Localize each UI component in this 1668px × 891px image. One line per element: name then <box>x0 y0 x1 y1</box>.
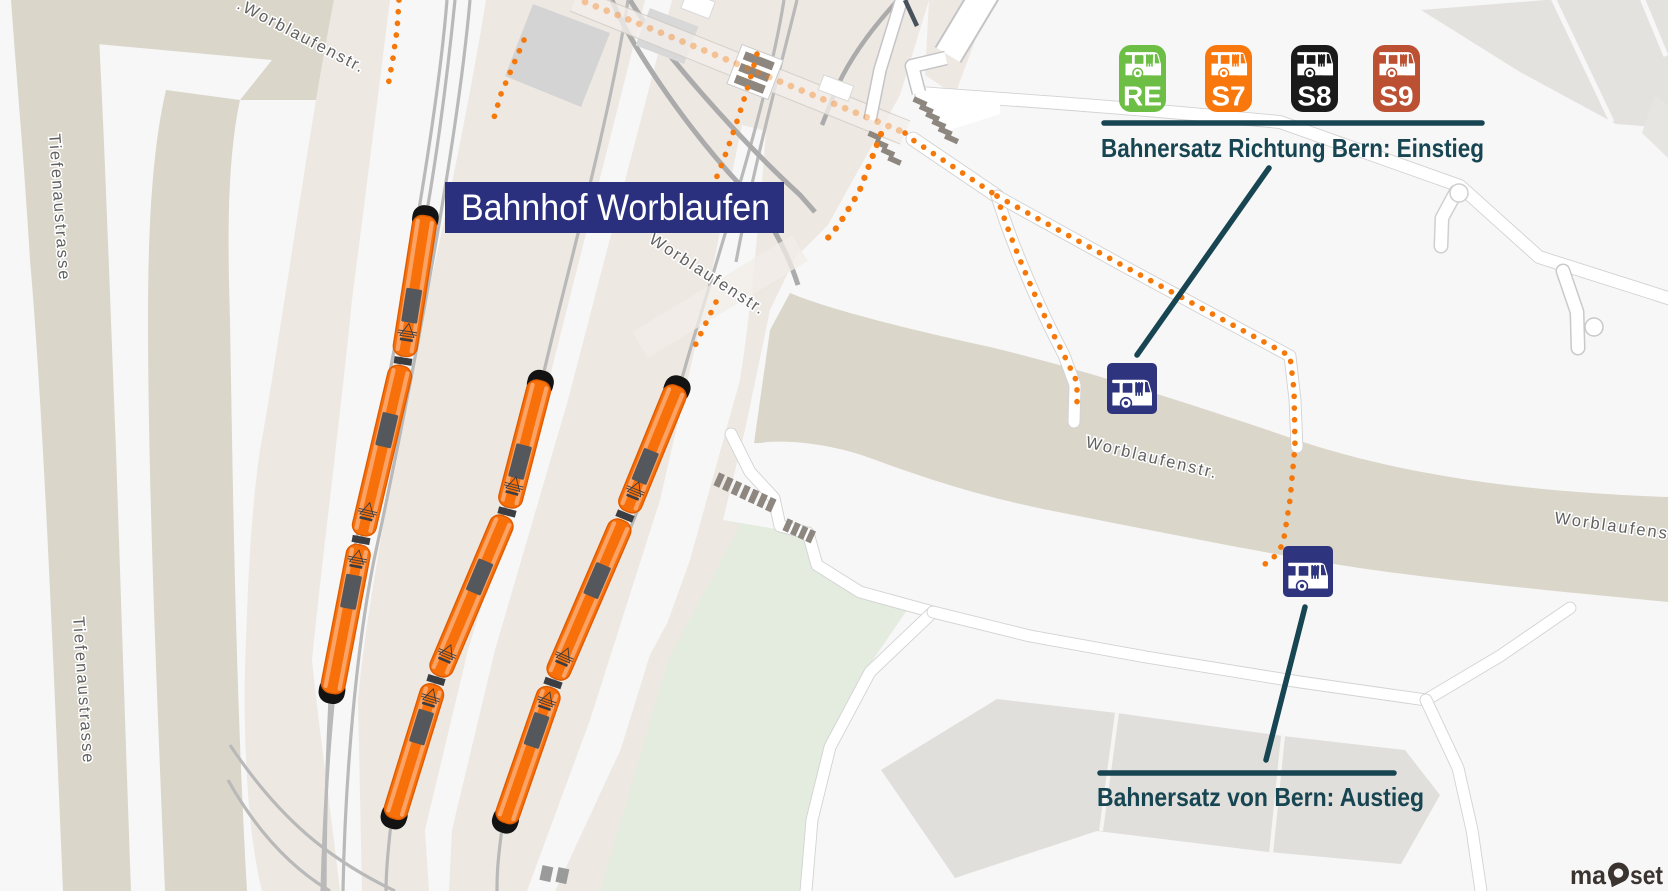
svg-text:S8: S8 <box>1297 81 1331 112</box>
svg-text:set: set <box>1630 860 1663 890</box>
svg-text:Bahnersatz Richtung Bern: Eins: Bahnersatz Richtung Bern: Einstieg <box>1101 133 1484 163</box>
svg-text:S7: S7 <box>1211 81 1245 112</box>
svg-text:S9: S9 <box>1379 81 1413 112</box>
svg-text:RE: RE <box>1123 81 1162 112</box>
svg-text:Bahnhof Worblaufen: Bahnhof Worblaufen <box>461 187 770 228</box>
svg-text:Bahnersatz von Bern: Austieg: Bahnersatz von Bern: Austieg <box>1097 782 1424 812</box>
svg-text:ma: ma <box>1570 860 1607 890</box>
